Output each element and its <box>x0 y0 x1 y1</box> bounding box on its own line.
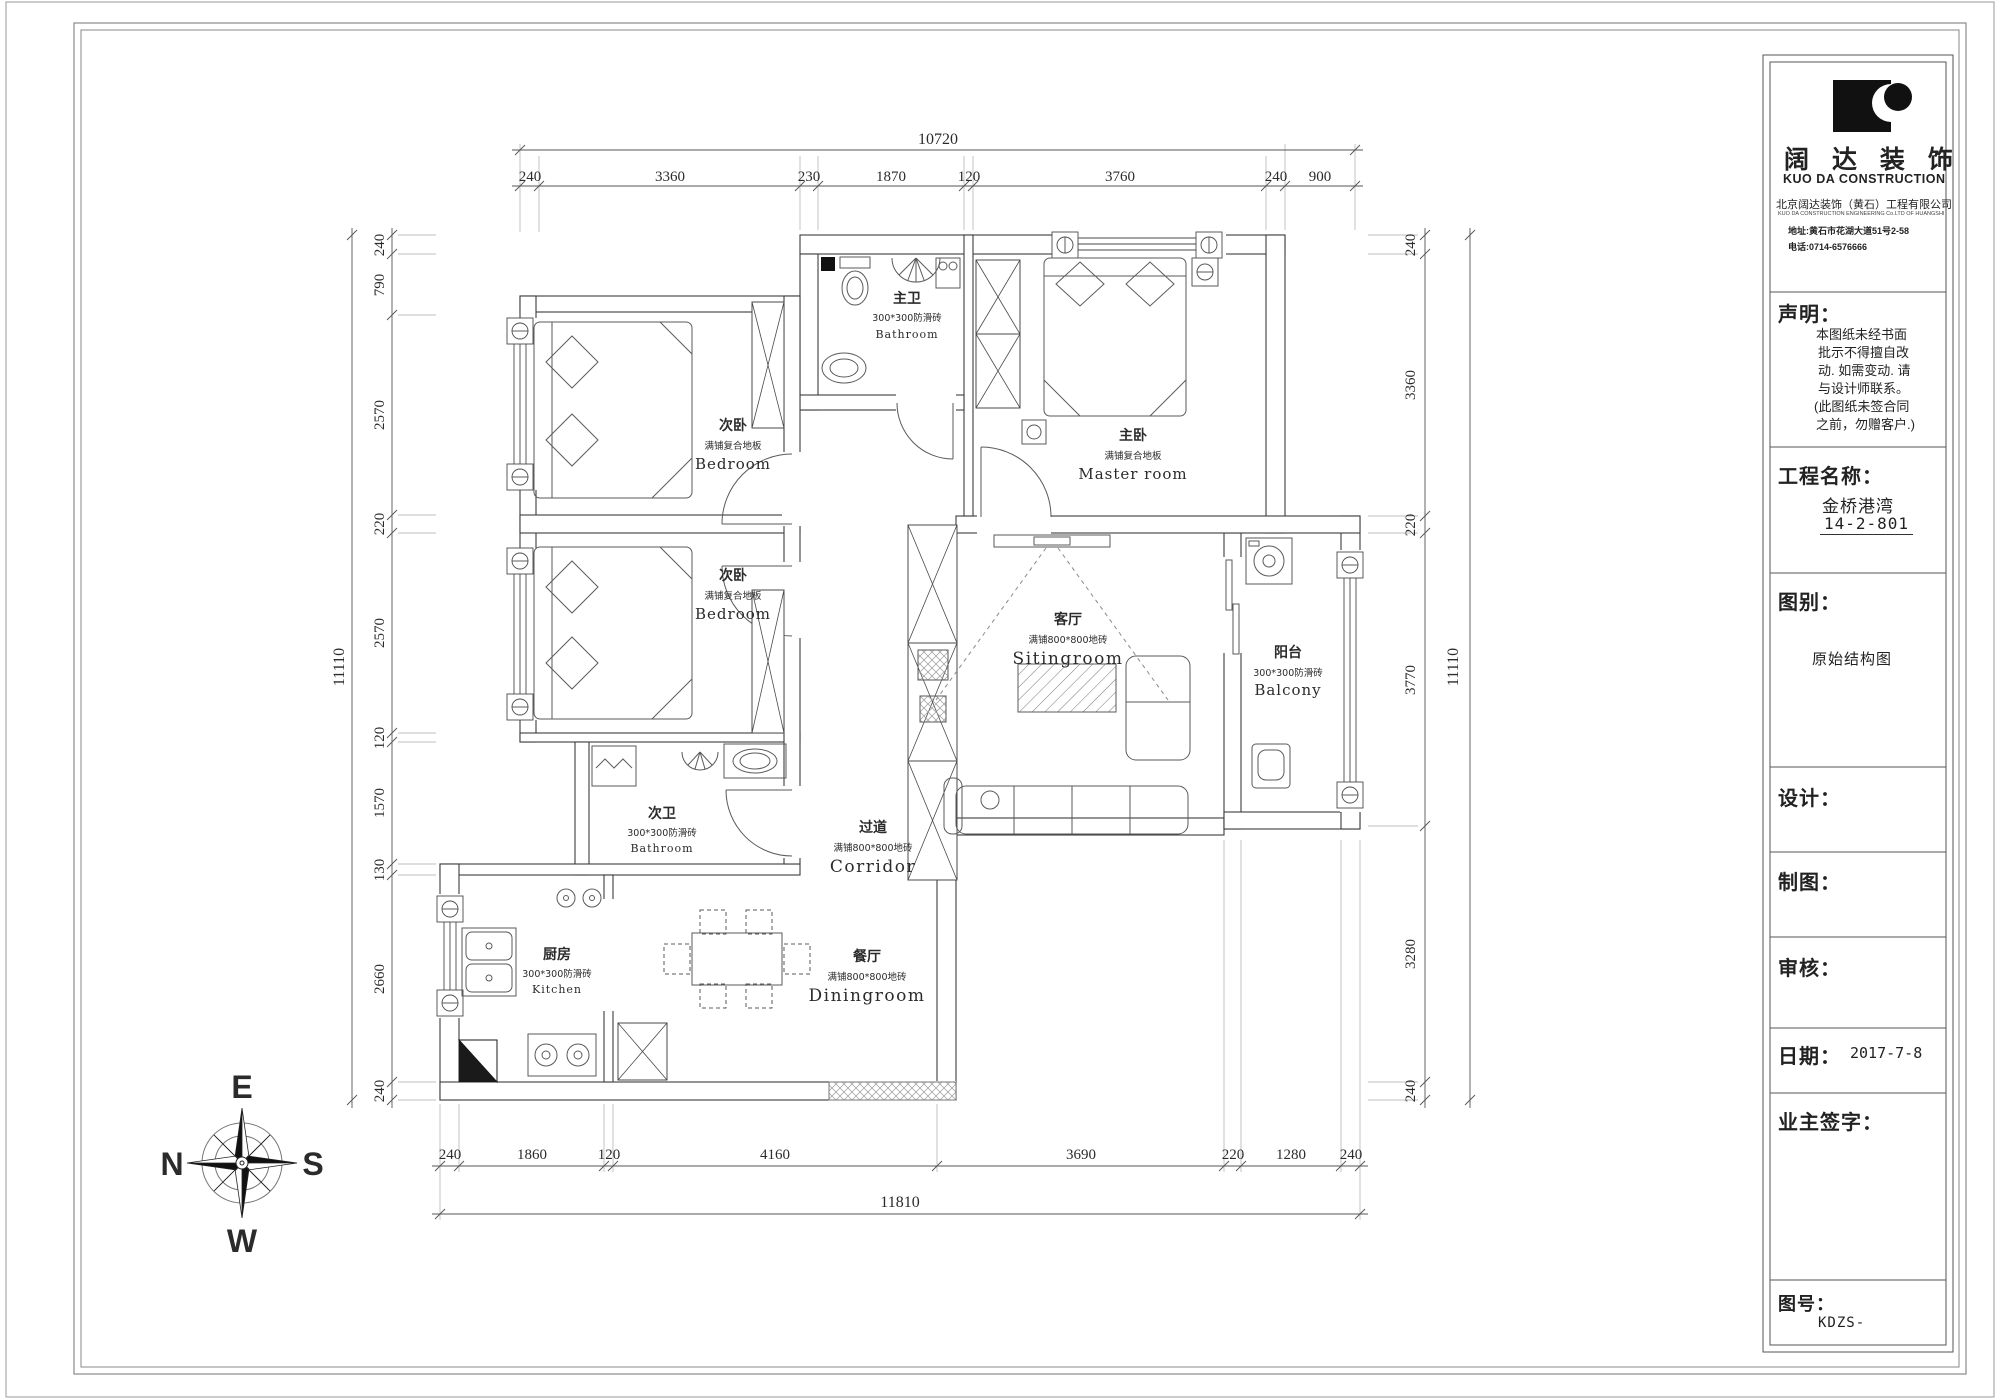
compass-s: S <box>302 1146 323 1182</box>
drafter-label: 制图： <box>1778 866 1841 895</box>
compass-e: E <box>231 1069 252 1105</box>
svg-text:240: 240 <box>1265 169 1288 185</box>
svg-text:240: 240 <box>439 1147 462 1163</box>
designer-label: 设计： <box>1778 782 1841 811</box>
drawing-type-value: 原始结构图 <box>1812 648 1892 669</box>
auditor-label: 审核： <box>1778 952 1841 981</box>
svg-text:主卧: 主卧 <box>1119 427 1147 444</box>
svg-text:餐厅: 餐厅 <box>852 948 881 965</box>
svg-text:1570: 1570 <box>372 788 388 818</box>
svg-text:满铺复合地板: 满铺复合地板 <box>704 590 762 602</box>
svg-text:240: 240 <box>372 1080 388 1103</box>
sheet-frame <box>6 2 1994 1397</box>
svg-text:满铺800*800地砖: 满铺800*800地砖 <box>827 971 907 983</box>
svg-text:790: 790 <box>372 274 388 297</box>
svg-text:1870: 1870 <box>876 169 906 185</box>
room-label-bedroom2: 次卧 满铺复合地板 Bedroom <box>695 567 771 623</box>
shafts-wardrobes <box>618 260 1020 1080</box>
dim-top-overall: 10720 <box>918 131 958 148</box>
svg-text:满铺800*800地砖: 满铺800*800地砖 <box>833 842 913 854</box>
svg-text:220: 220 <box>1403 514 1419 537</box>
compass-w: W <box>227 1223 258 1259</box>
svg-text:1860: 1860 <box>517 1147 547 1163</box>
svg-text:2660: 2660 <box>372 964 388 994</box>
svg-text:240: 240 <box>519 169 542 185</box>
bathroom2-fixtures <box>592 744 786 786</box>
svg-text:满铺复合地板: 满铺复合地板 <box>1104 450 1162 462</box>
svg-text:900: 900 <box>1309 169 1332 185</box>
room-label-corridor: 过道 满铺800*800地砖 Corridor <box>830 819 916 877</box>
date-label: 日期： <box>1778 1040 1841 1069</box>
svg-text:3770: 3770 <box>1403 665 1419 695</box>
room-label-sittingroom: 客厅 满铺800*800地砖 Sitingroom <box>1013 611 1124 669</box>
svg-text:220: 220 <box>372 513 388 536</box>
statement-line: 动. 如需变动. 请 <box>1818 362 1910 381</box>
date-value: 2017-7-8 <box>1850 1044 1922 1062</box>
svg-text:300*300防滑砖: 300*300防滑砖 <box>872 312 942 324</box>
svg-text:240: 240 <box>1340 1147 1363 1163</box>
svg-text:3690: 3690 <box>1066 1147 1096 1163</box>
svg-text:客厅: 客厅 <box>1053 611 1082 628</box>
svg-text:220: 220 <box>1222 1147 1245 1163</box>
svg-text:3360: 3360 <box>1403 370 1419 400</box>
room-label-master: 主卧 满铺复合地板 Master room <box>1078 427 1187 483</box>
dining-table <box>664 910 810 1008</box>
company-phone: 电话:0714-6576666 <box>1788 240 1867 253</box>
svg-text:4160: 4160 <box>760 1147 790 1163</box>
drawing-no-value: KDZS- <box>1818 1315 1865 1331</box>
dim-bottom-overall: 11810 <box>880 1194 919 1211</box>
svg-text:次卫: 次卫 <box>648 805 676 822</box>
svg-text:Corridor: Corridor <box>830 857 916 877</box>
company-name-en: KUO DA CONSTRUCTION ENGINEERING Co.LTD O… <box>1778 211 1944 217</box>
svg-text:240: 240 <box>372 234 388 257</box>
room-label-diningroom: 餐厅 满铺800*800地砖 Diningroom <box>809 948 926 1006</box>
washing-machine-balcony <box>1246 538 1292 584</box>
company-address: 地址:黄石市花湖大道51号2-58 <box>1788 224 1909 237</box>
svg-text:120: 120 <box>372 727 388 750</box>
svg-text:130: 130 <box>372 859 388 882</box>
svg-text:2570: 2570 <box>372 400 388 430</box>
dining-column <box>618 1023 667 1080</box>
svg-text:Diningroom: Diningroom <box>809 986 926 1006</box>
bed-master <box>1022 258 1218 444</box>
drawing-sheet: 10720 240 3360 230 1870 120 3760 240 900… <box>0 0 2000 1400</box>
bed-bedroom1 <box>534 322 692 498</box>
compass-n: N <box>160 1146 183 1182</box>
statement-label: 声明： <box>1778 298 1841 327</box>
statement-line: 本图纸未经书面 <box>1816 326 1907 345</box>
project-number: 14-2-801 <box>1820 514 1913 535</box>
floor-plan-svg: 10720 240 3360 230 1870 120 3760 240 900… <box>0 0 2000 1400</box>
svg-text:Bathroom: Bathroom <box>630 842 693 855</box>
compass-rose: E S W N <box>160 1069 323 1259</box>
svg-text:Balcony: Balcony <box>1254 681 1321 699</box>
owner-signature-label: 业主签字： <box>1778 1106 1883 1135</box>
svg-text:主卫: 主卫 <box>893 290 921 307</box>
company-logo-icon <box>1833 80 1912 132</box>
svg-text:过道: 过道 <box>859 819 887 836</box>
mop-sink-balcony <box>1252 744 1290 788</box>
bed-bedroom2 <box>534 547 692 719</box>
drawing-type-label: 图别： <box>1778 586 1841 615</box>
svg-text:240: 240 <box>1403 234 1419 257</box>
svg-text:次卧: 次卧 <box>719 417 747 434</box>
brand-name-cn: 阔 达 装 饰 <box>1784 140 1961 176</box>
company-name-cn: 北京阔达装饰（黄石）工程有限公司 <box>1776 196 1952 212</box>
door-bathroom1 <box>897 403 953 459</box>
room-label-balcony: 阳台 300*300防滑砖 Balcony <box>1253 644 1323 699</box>
svg-text:Kitchen: Kitchen <box>532 983 582 996</box>
svg-text:Bedroom: Bedroom <box>695 455 771 473</box>
svg-text:满铺800*800地砖: 满铺800*800地砖 <box>1028 634 1108 646</box>
svg-text:Master room: Master room <box>1078 465 1187 483</box>
svg-text:次卧: 次卧 <box>719 567 747 584</box>
svg-text:2570: 2570 <box>372 618 388 648</box>
room-label-bathroom2: 次卫 300*300防滑砖 Bathroom <box>627 805 697 855</box>
svg-text:120: 120 <box>598 1147 621 1163</box>
door-master <box>981 447 1051 517</box>
svg-text:240: 240 <box>1403 1080 1419 1103</box>
svg-text:Sitingroom: Sitingroom <box>1013 649 1124 669</box>
svg-text:230: 230 <box>798 169 821 185</box>
room-label-kitchen: 厨房 300*300防滑砖 Kitchen <box>522 946 592 996</box>
coffee-table <box>1018 664 1116 712</box>
svg-text:阳台: 阳台 <box>1274 644 1302 661</box>
statement-line: (此图纸未签合同 <box>1814 398 1909 417</box>
svg-text:300*300防滑砖: 300*300防滑砖 <box>522 968 592 980</box>
statement-line: 批示不得擅自改 <box>1818 344 1909 363</box>
svg-text:3360: 3360 <box>655 169 685 185</box>
svg-text:厨房: 厨房 <box>543 946 571 963</box>
statement-line: 与设计师联系。 <box>1818 380 1909 399</box>
svg-text:120: 120 <box>958 169 981 185</box>
entry-mat <box>829 1082 956 1100</box>
dim-right-overall: 11110 <box>1445 648 1462 686</box>
statement-line: 之前，勿赠客户.) <box>1816 416 1915 435</box>
svg-text:300*300防滑砖: 300*300防滑砖 <box>627 827 697 839</box>
svg-text:3280: 3280 <box>1403 939 1419 969</box>
svg-text:3760: 3760 <box>1105 169 1135 185</box>
room-label-bathroom1: 主卫 300*300防滑砖 Bathroom <box>872 290 942 341</box>
drawing-no-label: 图号： <box>1778 1290 1835 1316</box>
svg-text:Bedroom: Bedroom <box>695 605 771 623</box>
project-label: 工程名称： <box>1778 460 1883 489</box>
svg-text:Bathroom: Bathroom <box>875 328 938 341</box>
svg-text:300*300防滑砖: 300*300防滑砖 <box>1253 667 1323 679</box>
wardrobe-master <box>976 260 1020 408</box>
svg-text:1280: 1280 <box>1276 1147 1306 1163</box>
svg-text:满铺复合地板: 满铺复合地板 <box>704 440 762 452</box>
brand-name-en: KUO DA CONSTRUCTION <box>1783 172 1946 186</box>
wardrobe-bedroom1 <box>752 302 784 428</box>
dim-left-overall: 11110 <box>331 648 348 686</box>
